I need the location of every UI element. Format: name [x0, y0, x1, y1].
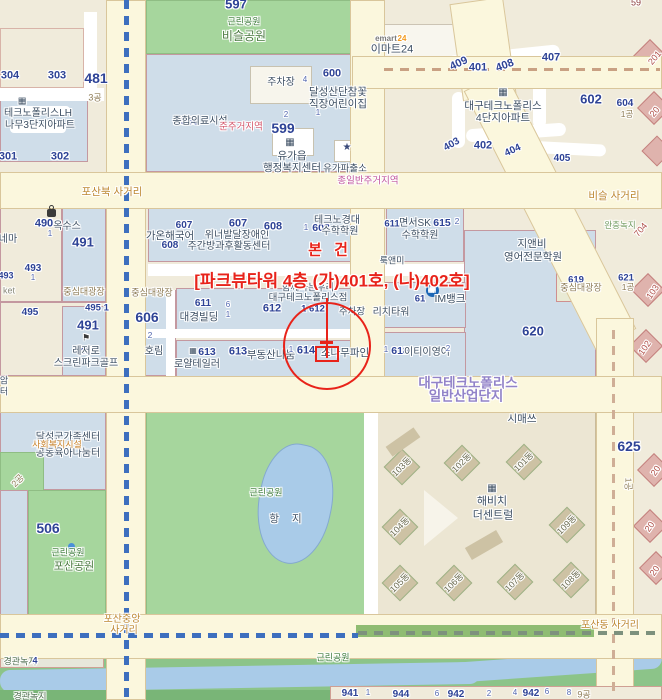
- district-line2: 일반산업단지: [429, 389, 504, 403]
- parcel-942-b: 942: [523, 689, 540, 699]
- river-bank-dark: [0, 690, 330, 700]
- parcel-611-b: 611: [195, 299, 211, 309]
- parcel-607-a: 607: [176, 221, 193, 231]
- parcel-491-golf: 491: [77, 319, 99, 332]
- transit-line-h4: [0, 633, 358, 638]
- zone-welfare: 사회복지시설: [32, 441, 82, 450]
- township-line1: 유가읍: [278, 151, 307, 162]
- golf-line1: 레저로: [72, 347, 100, 357]
- park-label-river: 근린공원: [316, 654, 349, 663]
- shopping-bag-icon-handle: [49, 205, 54, 210]
- parcel-608-gaon: 608: [162, 241, 179, 251]
- sub-942-4: 4: [513, 689, 517, 697]
- parcel-620: 620: [522, 325, 544, 338]
- apt-4danji-line1: 대구테크노폴리스: [464, 101, 541, 112]
- sub-944-6: 6: [435, 690, 439, 698]
- parcel-941: 941: [342, 689, 359, 699]
- shop-oksuseu: 옥수스: [53, 222, 81, 232]
- apartment-icon-central: ▦: [487, 484, 496, 494]
- shop-royal-tailor: 로얄테일러: [174, 360, 220, 370]
- academy-sk-line2: 수학학원: [402, 231, 439, 241]
- sub-615-2: 2: [455, 217, 460, 226]
- parcel-615: 615: [433, 218, 451, 229]
- family-center-line2: 공동육아나눔터: [36, 449, 100, 459]
- sub-493-1: 1: [31, 274, 35, 282]
- sub-942-6: 6: [545, 688, 549, 696]
- zone-residential-general: 종일반주거지역: [337, 176, 398, 186]
- township-line2: 행정복지센터: [263, 163, 321, 174]
- parcel-625: 625: [617, 439, 640, 453]
- sub-611-6: 6: [226, 301, 230, 309]
- apartment-icon-4danji: ▦: [498, 88, 507, 98]
- sub-600-4: 4: [303, 76, 307, 84]
- apt-lh-line1: 테크노폴리스LH: [4, 109, 72, 119]
- parcel-403: 403: [442, 136, 461, 153]
- sub-490-1: 1: [48, 230, 52, 238]
- parking-label-north: 주차장: [267, 78, 295, 88]
- parcel-302: 302: [51, 152, 69, 163]
- intersection-jungang-line2: 사거리: [110, 626, 138, 636]
- parcel-491-upper: 491: [72, 236, 94, 249]
- police-icon: ★: [343, 143, 352, 153]
- zone-1gong-c: 1공: [624, 478, 633, 491]
- parcel-616: 61: [415, 294, 426, 304]
- parcel-613-a: 613: [198, 347, 216, 358]
- academy-kyungdae-line2: 수학학원: [322, 227, 359, 237]
- parcel-611-a: 611: [384, 219, 399, 229]
- parcel-942-a: 942: [448, 690, 465, 700]
- academy-jnb-line2: 영어전문학원: [504, 252, 562, 263]
- parcel-301: 301: [0, 152, 17, 163]
- center-line1: 위너발달장애인: [205, 231, 269, 241]
- transit-line-v1: [124, 0, 129, 700]
- parcel-401: 401: [469, 63, 487, 74]
- parcel-402: 402: [474, 141, 492, 152]
- zone-1gong-b: 1공: [622, 283, 635, 292]
- lane-dashes-v3: [612, 330, 615, 698]
- apt-central-line2: 더센트럴: [473, 511, 513, 522]
- apt-4danji-line2: 4단지아파트: [476, 113, 530, 124]
- parcel-304: 304: [1, 71, 19, 82]
- academy-sk-line1: 면서SK: [399, 219, 431, 229]
- plaza-label-1: 중심대광장: [63, 288, 104, 297]
- government-icon: ▦: [285, 138, 294, 148]
- emart-logo-24: 24: [398, 35, 407, 43]
- academy-jnb-line1: 지앤비: [518, 239, 547, 250]
- sub-608-1: 1: [304, 224, 308, 232]
- apartment-icon-lh: ▦: [18, 97, 27, 106]
- subject-marker-box: [315, 346, 339, 362]
- partial-left-2: 터: [0, 388, 8, 397]
- pink-building-c: [641, 135, 662, 166]
- park-label-central: 근린공원: [249, 489, 282, 498]
- buffer-zone: 완충녹지: [604, 221, 635, 230]
- emart-name: 이마트24: [371, 45, 414, 56]
- golf-line2: 스크린파크골프: [54, 359, 118, 369]
- pond-label: 항 지: [269, 514, 306, 525]
- parcel-490: 490: [35, 219, 53, 230]
- bldg-daekyung: 대경빌딩: [180, 312, 219, 323]
- park-biseul-area: [146, 0, 352, 54]
- parcel-597: 597: [225, 0, 247, 11]
- sub-941-1: 1: [366, 689, 370, 697]
- bldg-horim: 호림: [145, 347, 163, 357]
- parcel-607-b: 607: [229, 219, 247, 230]
- shop-look: 룩앤미: [380, 257, 405, 266]
- park-biseul: 비슬공원: [222, 30, 266, 42]
- parcel-944: 944: [393, 690, 410, 700]
- parcel-599: 599: [271, 121, 294, 135]
- emart-logo-text: emart: [375, 35, 397, 43]
- golf-flag-icon: ⚑: [82, 334, 90, 343]
- sub-606-2: 2: [148, 331, 153, 340]
- daycare-line1: 달성산단참꽃: [309, 87, 367, 98]
- intersection-posanbuk: 포산북 사거리: [82, 187, 143, 198]
- park-label-biseul-small: 근린공원: [227, 18, 260, 27]
- parcel-600: 600: [323, 69, 341, 80]
- bldg-richtower: 리치타워: [373, 308, 410, 318]
- plaza-label-2: 중심대광장: [131, 289, 172, 298]
- zone-semi-residential: 준주거지역: [219, 122, 263, 132]
- sub-600-2: 2: [284, 111, 288, 119]
- sub-618-1: 1: [384, 346, 388, 354]
- academy-simath: 시매쓰: [508, 414, 537, 425]
- plaza-label-3: 중심대광장: [560, 284, 601, 293]
- parcel-481: 481: [84, 71, 107, 85]
- subject-label: 본 건: [308, 243, 352, 258]
- parcel-407: 407: [542, 53, 560, 64]
- partial-ket: ket: [3, 287, 15, 296]
- parcel-606: 606: [135, 310, 158, 324]
- parcel-506: 506: [36, 521, 59, 535]
- zone-3gong: 3공: [88, 94, 101, 103]
- parcel-612-a: 612: [263, 304, 281, 315]
- academy-kyungdae-line1: 테크노경대: [314, 216, 360, 226]
- sub-618-2: 2: [446, 345, 450, 353]
- sub-600-1: 1: [316, 109, 320, 117]
- sub-611-1: 1: [226, 311, 230, 319]
- subject-detail: [파크뷰타워 4층 (가)401호, (나)402호]: [194, 273, 469, 290]
- block-semi-residential: [146, 54, 352, 172]
- partial-493: 493: [0, 272, 14, 281]
- academy-etie: 이티이영어: [404, 348, 450, 358]
- zone-1gong-a: 1공: [621, 110, 634, 119]
- map-canvas: 3043034813공▦테크노폴리스LH나무3단지아파트301302597근린공…: [0, 0, 662, 700]
- bank-im: IM뱅크: [435, 294, 466, 305]
- parcel-613-b: 613: [229, 347, 247, 358]
- sub-landscape-4: 4: [32, 657, 37, 666]
- minor-road-park-v: [364, 412, 378, 618]
- parcel-604: 604: [617, 99, 634, 109]
- apt-central-line1: 해비치: [477, 497, 507, 508]
- parcel-495-b: 495 1: [85, 303, 109, 313]
- parcel-303: 303: [48, 71, 66, 82]
- partial-left-1: 암: [0, 377, 8, 386]
- zone-9gong: 9공: [577, 691, 590, 700]
- parcel-495-a: 495: [22, 308, 39, 318]
- park-posan: 포산공원: [54, 562, 94, 573]
- block-left-thin: [0, 490, 28, 618]
- zone-landscape-2: 경관녹지: [13, 693, 46, 700]
- partial-top-right: 59: [631, 0, 641, 8]
- apt-lh-line2: 나무3단지아파트: [5, 121, 75, 131]
- intersection-posandong: 포산동 사거리: [581, 621, 639, 631]
- parcel-608-b: 608: [264, 222, 282, 233]
- park-label-posan-small: 근린공원: [51, 549, 84, 558]
- parcel-405: 405: [554, 154, 571, 164]
- store-together-line2: 대구테크노폴리스점: [269, 293, 348, 303]
- building-icon-613: ▦: [189, 347, 197, 355]
- lane-dashes-h4-east: [358, 631, 662, 635]
- subject-marker-tick: [320, 341, 333, 344]
- center-line2: 주간방과후활동센터: [188, 242, 271, 252]
- lane-dashes-h1: [384, 68, 660, 71]
- partial-cinema: 네마: [0, 235, 17, 245]
- shopping-bag-icon: [47, 209, 56, 217]
- parcel-602: 602: [580, 93, 602, 106]
- sub-942-8: 8: [567, 689, 571, 697]
- intersection-jungang-line1: 포산중앙: [104, 615, 141, 625]
- police-label: 유가파출소: [323, 164, 367, 174]
- sub-942-2: 2: [487, 690, 491, 698]
- intersection-biseul: 비슬 사거리: [588, 191, 639, 202]
